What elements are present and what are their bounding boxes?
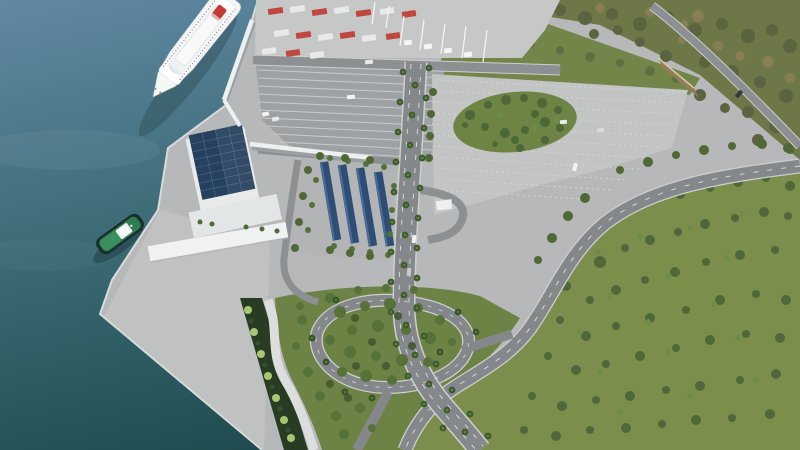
tree-highlight [723,255,729,261]
tree [621,423,631,433]
tree [757,139,767,149]
tree-shadow [382,362,390,370]
palm-tree-crown [402,71,405,74]
tree [700,219,710,229]
tree [368,424,376,432]
tree [462,122,468,128]
tree [528,392,536,400]
tree [557,401,567,411]
tree [571,365,581,375]
tree-shadow [351,314,359,322]
tree-highlight [497,112,503,118]
palm-tree-crown [428,67,431,70]
tree [316,152,324,160]
roof-garden-plant [198,220,203,225]
tree [313,177,319,183]
tree [672,151,680,159]
tree [382,284,390,292]
tree [585,52,595,62]
tree [547,233,557,243]
tree [699,145,709,155]
tree-highlight [532,125,538,131]
tree [309,202,315,208]
tree [516,144,524,152]
roof-garden-plant [210,222,215,227]
palm-tree-crown [414,84,417,87]
palm-tree-crown [425,97,428,100]
tree [520,426,528,434]
palm-tree-crown [399,101,402,104]
tree [556,124,564,132]
vehicle [407,268,412,276]
tree [299,192,307,200]
tree [765,409,775,419]
palm-tree-crown [407,174,410,177]
tree [296,302,304,310]
tree [429,88,437,96]
tree [354,286,362,294]
tree [586,296,594,304]
tree [786,146,794,154]
tree [396,354,408,366]
tree [781,295,791,305]
palm-tree-crown [325,361,328,364]
palm-tree-crown [475,331,478,334]
tree [448,338,456,346]
tree [391,183,397,189]
tree [381,164,387,170]
tree-highlight [637,233,643,239]
palm-tree-crown [414,354,417,357]
palm-tree-crown [451,389,454,392]
palm-tree-crown [390,251,393,254]
palm-tree-crown [397,131,400,134]
tree [520,94,528,102]
tree [500,128,510,138]
bush [287,434,295,442]
tree [695,381,705,391]
roof-garden-plant [244,225,249,230]
tree [465,110,475,120]
palm-tree [263,363,268,368]
shrub [613,25,623,35]
palm-tree-crown [393,191,396,194]
tree-highlight [577,329,583,335]
tree [775,333,785,343]
palm-tree-crown [416,277,419,280]
tree [334,306,346,318]
tree [534,256,542,264]
tree [641,276,649,284]
dry-shrub [595,3,605,13]
palm-tree-crown [390,281,393,284]
bush [280,416,288,424]
tree [360,301,370,311]
tree [387,375,397,385]
palm-tree-crown [435,363,438,366]
palm-tree-crown [419,187,422,190]
tree [556,316,564,324]
tree [360,370,372,382]
bush [272,394,280,402]
tree [592,396,600,404]
tree [554,106,562,114]
shrub [589,29,599,39]
palm-tree-crown [416,247,419,250]
shrub [783,39,797,53]
tree [602,360,610,368]
dry-shrub [692,10,704,22]
tree [325,335,335,345]
tree-shadow [326,380,334,388]
palm-tree-crown [411,114,414,117]
palm-tree-crown [423,335,426,338]
tree [291,244,299,252]
palm-tree-crown [407,375,410,378]
palm-tree-crown [416,307,419,310]
tree [295,218,303,226]
tree [616,166,624,174]
bush [244,306,252,314]
dry-shrub [762,56,774,68]
tree [327,155,333,161]
tree [492,141,498,147]
tree [366,252,374,260]
palm-tree-crown [335,299,338,302]
tree [531,110,539,118]
tree [537,98,547,108]
tree [742,330,750,338]
palm-tree-crown [311,337,314,340]
tree [303,367,313,377]
bush [250,328,258,336]
shrub [720,103,730,113]
tree [366,156,374,164]
tree [423,357,433,367]
palm-tree-crown [442,427,445,430]
gate-booth [436,199,453,211]
tree [784,212,792,220]
tree [586,426,594,434]
shrub [754,76,766,88]
tree [344,346,356,358]
tree [410,286,418,294]
tree [611,285,621,295]
palm-tree-crown [371,397,374,400]
palm-tree-crown [405,204,408,207]
palm-tree-crown [469,413,472,416]
palm-tree [286,428,291,433]
tree [580,193,590,203]
tree [563,211,573,221]
dry-shrub [785,73,795,83]
tree [501,95,511,105]
palm-tree-crown [409,144,412,147]
palm-tree [270,385,275,390]
roof-garden-plant [260,227,265,232]
tree [645,235,655,245]
tree [670,267,680,277]
tree [339,429,349,439]
tree [297,315,307,325]
palm-tree-crown [464,431,467,434]
tree-highlight [687,225,693,231]
tree-highlight [554,117,560,123]
tree [387,231,393,237]
tree [540,117,550,127]
tree [556,46,564,54]
tree-shadow [368,338,376,346]
tree [544,352,552,360]
bush [264,372,272,380]
tree [355,403,365,413]
tree-highlight [617,409,623,415]
tree [347,325,357,335]
tree [481,123,489,131]
tree [371,351,381,361]
tree [427,110,435,118]
shrub [742,106,754,118]
palm-tree [256,341,261,346]
tree-highlight [665,349,671,355]
tree [625,391,635,401]
tree-highlight [645,319,651,325]
tree [705,335,715,345]
tree [662,386,670,394]
palm-tree-crown [457,311,460,314]
tree-highlight [711,301,717,307]
tree [731,214,739,222]
palm-tree-crown [344,391,347,394]
tree-shadow [352,362,360,370]
palm-tree-crown [423,403,426,406]
palm-tree-crown [423,127,426,130]
vehicle [597,128,604,133]
shrub [578,11,592,25]
tree [702,258,710,266]
tree [341,154,349,162]
vehicle [347,95,355,100]
palm-tree-crown [390,311,393,314]
tree-highlight [753,377,759,383]
tree [541,136,549,144]
tree [435,315,445,325]
palm-tree-crown [487,435,490,438]
tree [759,207,769,217]
tree [735,250,745,260]
tree [752,290,760,298]
shrub [779,89,793,103]
tree [594,256,606,268]
tree [337,367,347,377]
shrub [741,29,755,43]
tree [346,249,354,257]
port-aerial-render [0,0,800,450]
palm-tree-crown [395,161,398,164]
tree-highlight [687,393,693,399]
palm-tree-crown [428,383,431,386]
tree [384,298,396,310]
tree [292,342,300,350]
bush [257,350,265,358]
tree [551,431,561,441]
dry-shrub [735,51,745,61]
tree-highlight [597,369,603,375]
shrub [633,17,647,31]
scene-svg [0,0,800,450]
palm-tree-crown [395,343,398,346]
tree [304,166,312,174]
shrub [606,8,618,20]
palm-tree-crown [403,294,406,297]
tree [674,228,682,236]
tree [326,246,334,254]
tree [372,320,384,332]
tree-highlight [739,211,745,217]
tree [621,244,629,252]
dry-shrub [713,41,723,51]
tree [616,59,624,67]
tree [771,369,781,379]
tree-shadow [394,312,402,320]
palm-tree-crown [403,264,406,267]
tree [728,414,736,422]
palm-tree-crown [446,409,449,412]
tree [331,411,341,421]
palm-tree-crown [405,324,408,327]
tree [672,344,680,352]
tree [426,132,434,140]
vehicle [560,120,567,125]
tree-shadow [408,342,416,350]
tree [771,246,779,254]
tree [511,136,519,144]
palm-tree-crown [417,217,420,220]
tree [736,376,744,384]
vehicle [365,60,373,65]
tree-highlight [665,273,671,279]
palm-tree [249,319,254,324]
tree [658,420,666,428]
tree [645,66,655,76]
tree [305,227,311,233]
palm-tree [278,407,283,412]
tree-highlight [735,335,741,341]
tree-highlight [595,249,601,255]
tree [612,322,620,330]
tree [521,126,529,134]
tree [315,391,325,401]
palm-tree-crown [439,351,442,354]
palm-tree-crown [421,157,424,160]
tree [691,415,701,425]
shrub [716,18,728,30]
tree [389,207,395,213]
tree [643,157,653,167]
palm-tree-crown [404,234,407,237]
tree [728,142,736,150]
palm-tree-crown [391,221,394,224]
tree [425,154,433,162]
tree-highlight [607,293,613,299]
vehicle [412,235,417,243]
tree [785,181,795,191]
shrub [766,24,778,36]
tree [635,351,645,361]
shrub [635,37,645,47]
roof-garden-plant [275,229,280,234]
tree [484,101,492,109]
tree [682,306,690,314]
